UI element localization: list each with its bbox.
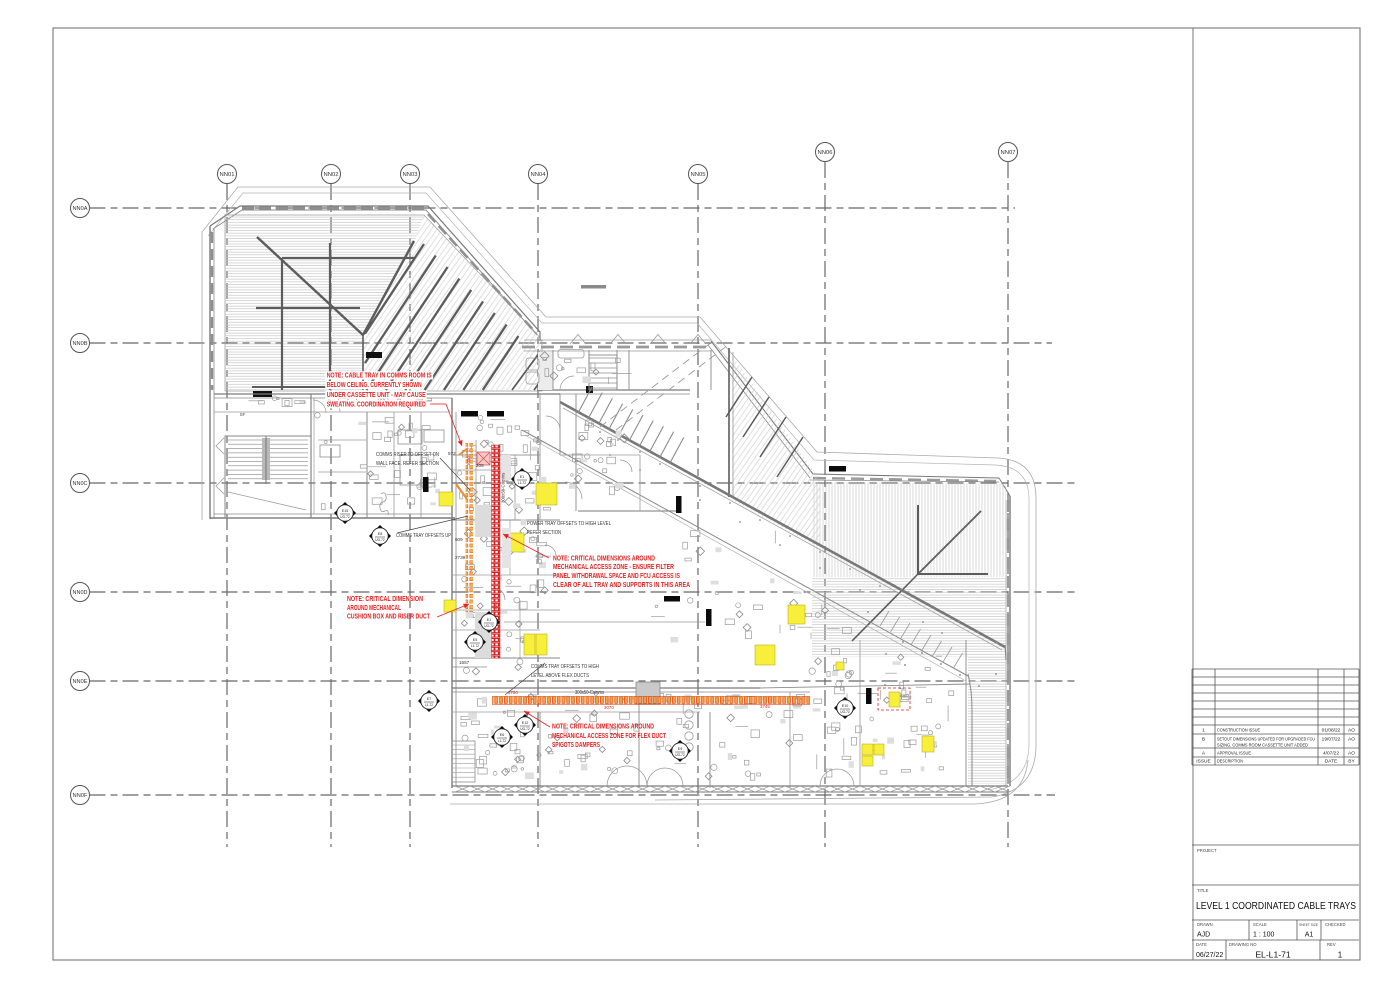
svg-text:CLEAR OF ALL TRAY AND SUPPORTS: CLEAR OF ALL TRAY AND SUPPORTS IN THIS A…	[553, 582, 690, 589]
svg-text:SHEET SIZE: SHEET SIZE	[1299, 923, 1318, 927]
svg-text:MECHANICAL ACCESS ZONE FOR FLE: MECHANICAL ACCESS ZONE FOR FLEX DUCT	[552, 733, 667, 740]
svg-text:NOTE: CRITICAL DIMENSIONS AROU: NOTE: CRITICAL DIMENSIONS AROUND	[552, 724, 654, 731]
svg-text:NOTE: CRITICAL DIMENSIONS AROU: NOTE: CRITICAL DIMENSIONS AROUND	[553, 555, 655, 562]
svg-text:UG-72: UG-72	[484, 624, 494, 628]
svg-text:AJD: AJD	[1197, 932, 1210, 939]
svg-text:SPIGOTS DAMPERS: SPIGOTS DAMPERS	[552, 742, 600, 749]
svg-text:NN01: NN01	[220, 172, 235, 178]
svg-text:NN0B: NN0B	[73, 341, 88, 347]
svg-text:BY: BY	[1348, 759, 1355, 765]
svg-text:NN04: NN04	[531, 172, 546, 178]
svg-text:AO: AO	[1348, 737, 1355, 743]
svg-text:APPROVAL ISSUE: APPROVAL ISSUE	[1217, 751, 1251, 757]
svg-text:REV: REV	[1327, 942, 1336, 947]
svg-text:300x50-Comms: 300x50-Comms	[501, 473, 506, 503]
svg-text:1657: 1657	[459, 660, 470, 665]
svg-text:E12: E12	[522, 721, 528, 725]
svg-text:AO: AO	[1348, 728, 1355, 734]
svg-text:1 : 100: 1 : 100	[1253, 932, 1275, 939]
svg-text:COMMS RISER TO OFFSET ON: COMMS RISER TO OFFSET ON	[376, 452, 439, 458]
svg-text:E1: E1	[487, 618, 491, 622]
svg-text:205: 205	[476, 463, 484, 468]
svg-text:PROJECT: PROJECT	[1197, 848, 1217, 853]
svg-text:3070: 3070	[604, 705, 614, 710]
svg-text:CHECKED: CHECKED	[1325, 922, 1345, 927]
svg-text:E1: E1	[520, 475, 524, 479]
svg-text:NN0A: NN0A	[73, 206, 88, 212]
svg-text:E8: E8	[378, 532, 382, 536]
svg-text:19/07/22: 19/07/22	[1322, 737, 1341, 743]
svg-text:REFER SECTION: REFER SECTION	[527, 530, 561, 536]
svg-text:UG-72: UG-72	[675, 753, 685, 757]
svg-text:E6: E6	[500, 733, 504, 737]
svg-text:NN05: NN05	[691, 172, 706, 178]
svg-text:E9: E9	[678, 747, 682, 751]
svg-text:SCALE: SCALE	[1253, 922, 1267, 927]
svg-text:NN0F: NN0F	[73, 793, 89, 799]
svg-text:UG-72: UG-72	[520, 727, 530, 731]
svg-text:NN03: NN03	[403, 172, 418, 178]
svg-text:BF: BF	[240, 412, 246, 417]
svg-text:L1-72: L1-72	[518, 481, 526, 485]
svg-text:300: 300	[493, 602, 498, 610]
svg-text:NN0C: NN0C	[73, 481, 88, 487]
svg-text:DATE: DATE	[1325, 759, 1337, 765]
svg-text:572: 572	[448, 451, 456, 456]
svg-text:LEVEL ABOVE FLEX DUCTS: LEVEL ABOVE FLEX DUCTS	[531, 673, 589, 679]
svg-text:4/07/22: 4/07/22	[1323, 751, 1339, 757]
svg-text:E7: E7	[427, 697, 431, 701]
svg-text:MECHANICAL ACCESS ZONE - ENSUR: MECHANICAL ACCESS ZONE - ENSURE FILTER	[553, 564, 674, 571]
svg-text:1: 1	[1338, 951, 1343, 960]
svg-text:EL-L1-71: EL-L1-71	[1255, 950, 1291, 960]
svg-text:3745: 3745	[760, 704, 770, 709]
svg-text:2739: 2739	[455, 555, 466, 560]
svg-text:CONSTRUCTION ISSUE: CONSTRUCTION ISSUE	[1217, 728, 1260, 734]
svg-text:CUSHION BOX AND RISER DUCT: CUSHION BOX AND RISER DUCT	[347, 614, 431, 621]
svg-text:DATE: DATE	[1196, 942, 1207, 947]
svg-text:PANEL WITHDRAWAL SPACE AND FCU: PANEL WITHDRAWAL SPACE AND FCU ACCESS IS	[553, 573, 680, 580]
svg-text:E15: E15	[342, 509, 348, 513]
svg-text:06/27/22: 06/27/22	[1196, 952, 1223, 959]
svg-text:DRAWING NO: DRAWING NO	[1229, 942, 1257, 947]
svg-text:UG-72: UG-72	[340, 515, 350, 519]
svg-text:1: 1	[1202, 728, 1205, 734]
svg-text:WALL FACE. REFER SECTION: WALL FACE. REFER SECTION	[376, 461, 439, 467]
svg-text:DRAWN: DRAWN	[1197, 922, 1213, 927]
svg-text:AO: AO	[1348, 751, 1355, 757]
svg-text:L1-72: L1-72	[498, 739, 506, 743]
svg-text:300x50-Comms: 300x50-Comms	[575, 690, 604, 696]
svg-text:UG-72: UG-72	[375, 538, 385, 542]
svg-text:A1: A1	[1305, 932, 1314, 939]
svg-text:SWEATING. COORDINATION REQUIRE: SWEATING. COORDINATION REQUIRED	[327, 401, 426, 408]
svg-text:UG-72: UG-72	[840, 710, 850, 714]
svg-text:3750: 3750	[508, 690, 518, 695]
svg-text:L1-72: L1-72	[425, 703, 433, 707]
svg-text:UNDER CASSETTE UNIT - MAY CAUS: UNDER CASSETTE UNIT - MAY CAUSE	[327, 392, 426, 399]
svg-text:E5: E5	[473, 638, 477, 642]
svg-text:L1-72: L1-72	[471, 644, 479, 648]
svg-text:ISSUE: ISSUE	[1196, 759, 1210, 765]
svg-text:1090: 1090	[466, 456, 471, 466]
svg-text:BELOW CEILING. CURRENTLY SHOWN: BELOW CEILING. CURRENTLY SHOWN	[327, 382, 422, 389]
svg-text:01/08/22: 01/08/22	[1322, 728, 1341, 734]
svg-text:COMMS TRAY OFFSETS TO HIGH: COMMS TRAY OFFSETS TO HIGH	[531, 664, 599, 670]
svg-text:NOTE: CABLE TRAY IN COMMS ROOM: NOTE: CABLE TRAY IN COMMS ROOM IS	[327, 373, 432, 380]
svg-text:AROUND MECHANICAL: AROUND MECHANICAL	[347, 605, 401, 612]
svg-text:SIZING. COMMS ROOM CASSETTE UN: SIZING. COMMS ROOM CASSETTE UNIT ADDED	[1217, 743, 1308, 749]
svg-text:NOTE: CRITICAL DIMENSION: NOTE: CRITICAL DIMENSION	[347, 596, 423, 603]
svg-text:B: B	[1202, 737, 1205, 743]
svg-text:COMMS TRAY OFFSETS UP: COMMS TRAY OFFSETS UP	[396, 533, 451, 539]
svg-text:NN06: NN06	[818, 150, 833, 156]
svg-text:NN0E: NN0E	[73, 679, 88, 685]
svg-text:NN02: NN02	[324, 172, 339, 178]
svg-text:E10: E10	[842, 704, 848, 708]
svg-text:POWER TRAY OFFSETS TO HIGH LEV: POWER TRAY OFFSETS TO HIGH LEVEL	[527, 521, 611, 527]
svg-text:NN07: NN07	[1001, 150, 1016, 156]
svg-text:NN0D: NN0D	[73, 590, 88, 596]
svg-text:DESCRIPTION: DESCRIPTION	[1217, 759, 1243, 765]
svg-text:TITLE: TITLE	[1197, 888, 1209, 893]
svg-text:LEVEL 1 COORDINATED CABLE TRAY: LEVEL 1 COORDINATED CABLE TRAYS	[1196, 901, 1356, 912]
svg-text:SETOUT DIMENSIONS UPDATED FOR: SETOUT DIMENSIONS UPDATED FOR UPGRADED F…	[1217, 737, 1315, 743]
svg-text:609: 609	[455, 537, 463, 542]
